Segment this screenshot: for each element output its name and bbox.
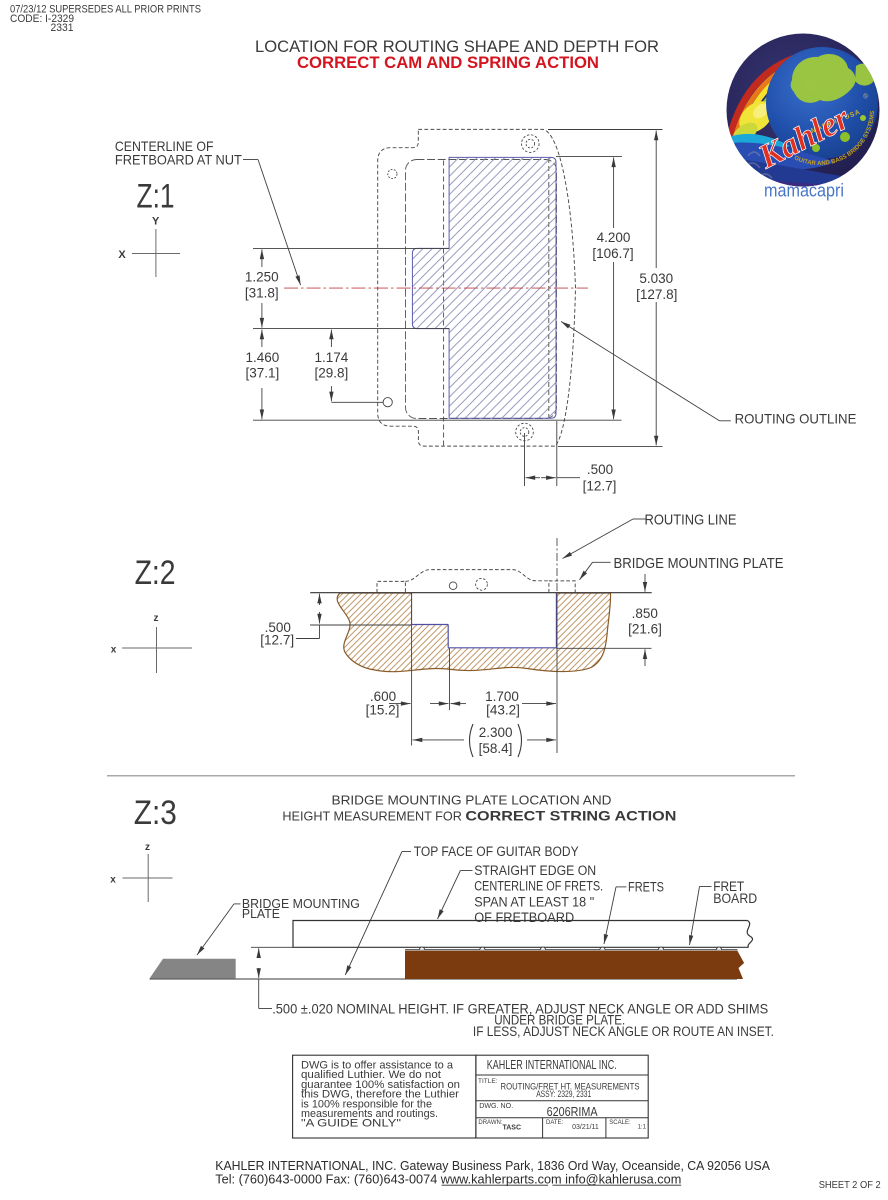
svg-text:Tel: (760)643-0000 Fax: (760): Tel: (760)643-0000 Fax: (760)643-0074 ww… [215, 1172, 681, 1186]
svg-text:BOARD: BOARD [713, 891, 757, 906]
svg-text:.500: .500 [587, 462, 613, 477]
svg-text:IF LESS, ADJUST NECK ANGLE OR: IF LESS, ADJUST NECK ANGLE OR ROUTE AN I… [473, 1024, 774, 1039]
svg-text:KAHLER INTERNATIONAL INC.: KAHLER INTERNATIONAL INC. [487, 1057, 617, 1072]
svg-text:HEIGHT MEASUREMENT FOR CORRECT: HEIGHT MEASUREMENT FOR CORRECT STRING AC… [282, 808, 676, 824]
svg-text:DWG. NO.: DWG. NO. [479, 1101, 513, 1110]
svg-text:2331: 2331 [51, 22, 74, 34]
svg-text:CORRECT CAM AND SPRING ACTION: CORRECT CAM AND SPRING ACTION [297, 53, 599, 72]
svg-text:[31.8]: [31.8] [245, 285, 279, 300]
svg-text:SHEET 2 OF 2: SHEET 2 OF 2 [819, 1180, 881, 1191]
svg-text:DATE:: DATE: [546, 1120, 564, 1126]
svg-text:[12.7]: [12.7] [583, 478, 617, 493]
svg-text:z: z [145, 842, 150, 853]
svg-text:CENTERLINE OF FRETS.: CENTERLINE OF FRETS. [474, 879, 603, 894]
svg-text:mamacapri: mamacapri [764, 181, 844, 201]
svg-text:1.250: 1.250 [245, 270, 279, 285]
svg-text:X: X [118, 249, 126, 261]
svg-text:1.460: 1.460 [246, 350, 280, 365]
svg-text:Z:1: Z:1 [137, 178, 175, 216]
svg-text:DRAWN:: DRAWN: [478, 1120, 502, 1126]
svg-text:[43.2]: [43.2] [486, 703, 520, 718]
svg-text:[29.8]: [29.8] [315, 366, 349, 381]
svg-text:BRIDGE MOUNTING PLATE: BRIDGE MOUNTING PLATE [614, 556, 784, 572]
svg-text:5.030: 5.030 [639, 271, 673, 286]
svg-text:[21.6]: [21.6] [628, 622, 662, 637]
svg-text:Y: Y [152, 216, 160, 228]
svg-text:OF FRETBOARD: OF FRETBOARD [474, 910, 574, 925]
svg-text:6206RIMA: 6206RIMA [547, 1104, 598, 1119]
svg-text:[37.1]: [37.1] [246, 366, 280, 381]
svg-text:2.300: 2.300 [479, 725, 513, 740]
svg-text:STRAIGHT EDGE ON: STRAIGHT EDGE ON [474, 863, 596, 878]
svg-text:FRETS: FRETS [628, 880, 664, 895]
svg-text:PLATE: PLATE [242, 906, 280, 921]
svg-text:KAHLER INTERNATIONAL, INC. Ga: KAHLER INTERNATIONAL, INC. Gateway Busin… [215, 1159, 770, 1173]
svg-text:TASC: TASC [503, 1124, 522, 1131]
svg-text:SCALE:: SCALE: [609, 1120, 631, 1126]
svg-text:1.174: 1.174 [315, 350, 349, 365]
svg-text:Z:3: Z:3 [134, 794, 177, 832]
svg-text:TITLE:: TITLE: [478, 1078, 498, 1085]
svg-text:FRETBOARD AT NUT: FRETBOARD AT NUT [115, 151, 242, 167]
svg-text:[58.4]: [58.4] [479, 741, 513, 756]
svg-text:Z:2: Z:2 [135, 554, 176, 592]
svg-text:x: x [110, 875, 116, 886]
svg-text:TOP FACE OF GUITAR BODY: TOP FACE OF GUITAR BODY [414, 844, 579, 859]
svg-text:ASSY: 2329, 2331: ASSY: 2329, 2331 [536, 1089, 591, 1099]
svg-text:1:1: 1:1 [638, 1125, 647, 1131]
svg-text:[12.7]: [12.7] [260, 633, 294, 648]
svg-text:4.200: 4.200 [597, 230, 631, 245]
svg-text:.850: .850 [632, 606, 658, 621]
svg-text:[106.7]: [106.7] [592, 246, 633, 261]
svg-text:SPAN AT LEAST 18 ": SPAN AT LEAST 18 " [474, 894, 594, 909]
svg-text:[127.8]: [127.8] [636, 287, 677, 302]
svg-text:x: x [111, 645, 117, 656]
svg-text:"A GUIDE ONLY": "A GUIDE ONLY" [301, 1118, 401, 1130]
svg-text:ROUTING LINE: ROUTING LINE [645, 512, 737, 528]
svg-text:BRIDGE MOUNTING PLATE LOCATION: BRIDGE MOUNTING PLATE LOCATION AND [332, 793, 612, 808]
svg-text:[15.2]: [15.2] [366, 703, 400, 718]
svg-text:ROUTING OUTLINE: ROUTING OUTLINE [735, 411, 857, 427]
svg-text:03/21/11: 03/21/11 [572, 1124, 599, 1131]
svg-text:z: z [154, 613, 159, 624]
